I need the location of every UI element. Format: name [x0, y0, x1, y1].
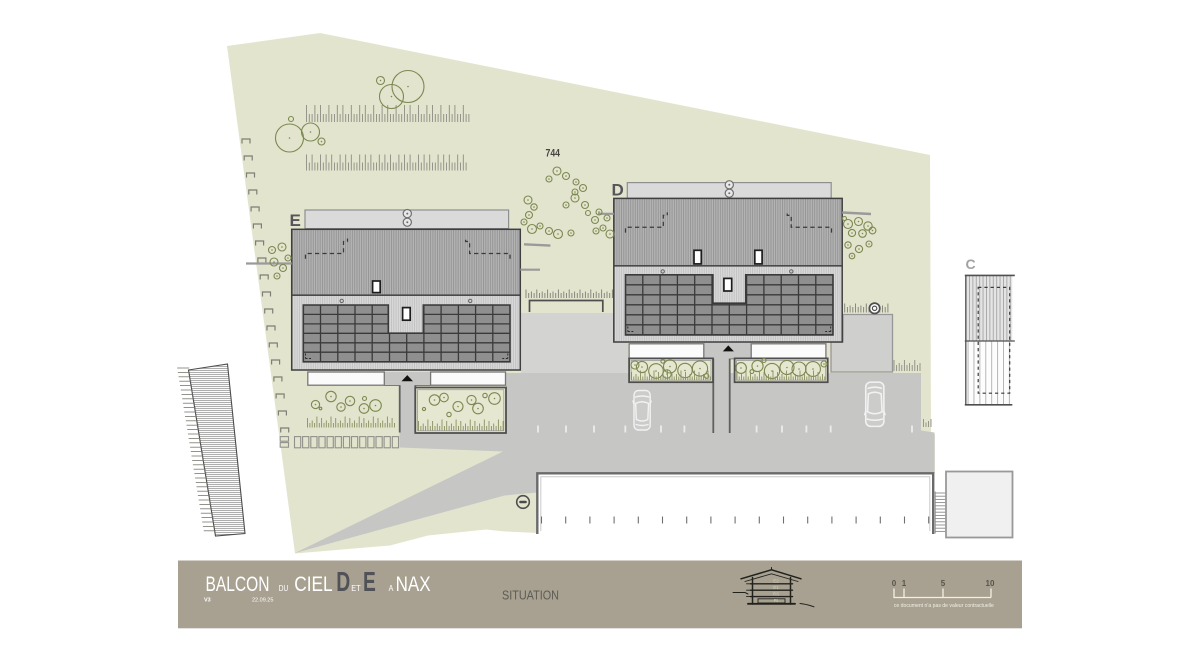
svg-text:22.09.25: 22.09.25: [252, 598, 273, 604]
svg-text:RI: RI: [774, 598, 779, 603]
svg-text:5: 5: [941, 579, 946, 588]
svg-text:BALCON: BALCON: [206, 572, 270, 596]
svg-text:C: C: [966, 256, 976, 272]
svg-text:NAX: NAX: [396, 572, 431, 596]
svg-text:D: D: [336, 566, 350, 597]
svg-text:ce document n'a pas de valeur: ce document n'a pas de valeur contractue…: [894, 603, 994, 609]
svg-text:1: 1: [902, 579, 907, 588]
svg-text:10: 10: [986, 579, 995, 588]
svg-text:SITUATION: SITUATION: [502, 589, 559, 603]
svg-text:E: E: [290, 211, 301, 230]
svg-text:E1: E1: [773, 585, 779, 590]
svg-text:V3: V3: [204, 598, 211, 604]
svg-text:D: D: [612, 181, 624, 200]
svg-text:744: 744: [546, 148, 561, 160]
svg-text:E: E: [363, 566, 376, 597]
svg-text:CIEL: CIEL: [294, 572, 333, 596]
svg-text:A: A: [389, 583, 394, 593]
svg-text:DU: DU: [279, 583, 289, 593]
svg-text:ET: ET: [351, 583, 360, 593]
svg-text:E2: E2: [773, 579, 779, 584]
svg-text:0: 0: [892, 579, 897, 588]
svg-text:RS: RS: [773, 591, 779, 596]
